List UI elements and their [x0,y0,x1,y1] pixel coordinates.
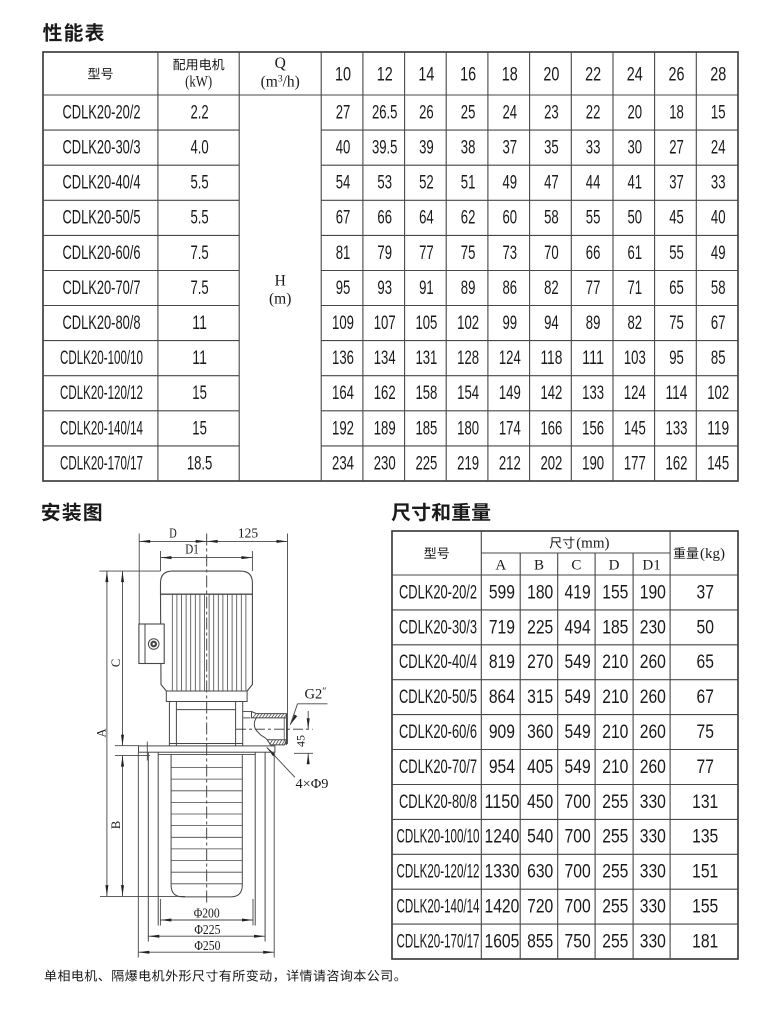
svg-text:24: 24 [711,138,726,159]
svg-text:5.5: 5.5 [191,173,209,194]
svg-text:82: 82 [628,313,643,334]
svg-text:85: 85 [711,348,726,369]
svg-text:109: 109 [332,313,354,334]
svg-text:77: 77 [697,757,714,778]
svg-text:50: 50 [628,208,643,229]
svg-text:40: 40 [336,138,351,159]
svg-text:51: 51 [461,173,476,194]
svg-text:234: 234 [332,453,354,474]
svg-text:909: 909 [489,722,515,743]
svg-text:91: 91 [419,278,434,299]
svg-text:7.5: 7.5 [191,243,209,264]
svg-text:158: 158 [415,383,437,404]
svg-text:260: 260 [640,687,666,708]
svg-text:89: 89 [586,313,601,334]
svg-text:D: D [609,558,620,574]
svg-text:B: B [109,821,123,829]
svg-text:45: 45 [293,735,307,747]
svg-text:1605: 1605 [485,931,520,952]
svg-text:75: 75 [697,722,714,743]
svg-text:164: 164 [332,383,354,404]
svg-text:A: A [95,728,109,737]
svg-text:18.5: 18.5 [187,453,213,474]
svg-text:133: 133 [666,418,688,439]
svg-text:Q: Q [275,55,286,72]
svg-text:28: 28 [710,64,726,85]
svg-text:180: 180 [527,582,553,603]
svg-text:5.5: 5.5 [191,208,209,229]
svg-text:181: 181 [692,931,718,952]
svg-text:CDLK20-100/10: CDLK20-100/10 [60,348,143,369]
svg-text:H: H [275,273,286,290]
svg-text:330: 330 [640,827,666,848]
svg-text:210: 210 [602,687,628,708]
svg-text:CDLK20-30/3: CDLK20-30/3 [63,138,141,159]
svg-text:37: 37 [669,173,684,194]
svg-text:2.2: 2.2 [191,102,209,123]
svg-text:D: D [169,527,177,542]
svg-text:22: 22 [586,102,601,123]
svg-text:119: 119 [707,418,729,439]
svg-text:330: 330 [640,931,666,952]
svg-text:95: 95 [336,278,351,299]
svg-text:549: 549 [565,652,591,673]
svg-text:185: 185 [602,617,628,638]
svg-text:35: 35 [544,138,559,159]
svg-text:210: 210 [602,757,628,778]
svg-text:105: 105 [415,313,437,334]
svg-text:20: 20 [543,64,559,85]
svg-text:151: 151 [692,862,718,883]
svg-text:CDLK20-40/4: CDLK20-40/4 [63,173,141,194]
svg-text:4.0: 4.0 [191,138,209,159]
svg-text:1330: 1330 [485,862,520,883]
svg-text:CDLK20-60/6: CDLK20-60/6 [63,243,141,264]
svg-text:62: 62 [461,208,476,229]
svg-text:89: 89 [461,278,476,299]
svg-text:180: 180 [457,418,479,439]
svg-text:190: 190 [582,453,604,474]
svg-text:CDLK20-20/2: CDLK20-20/2 [63,102,141,123]
svg-text:37: 37 [697,582,714,603]
svg-text:18: 18 [502,64,518,85]
svg-text:55: 55 [669,243,684,264]
svg-text:30: 30 [628,138,643,159]
svg-text:405: 405 [527,757,553,778]
svg-text:700: 700 [565,827,591,848]
svg-text:7.5: 7.5 [191,278,209,299]
svg-text:39: 39 [419,138,434,159]
svg-text:189: 189 [374,418,396,439]
svg-text:49: 49 [711,243,726,264]
svg-text:131: 131 [415,348,437,369]
svg-text:39.5: 39.5 [372,138,398,159]
svg-text:27: 27 [669,138,684,159]
svg-text:540: 540 [527,827,553,848]
svg-text:15: 15 [192,383,207,404]
svg-text:315: 315 [527,687,553,708]
svg-text:70: 70 [544,243,559,264]
svg-text:71: 71 [628,278,643,299]
svg-text:225: 225 [527,617,553,638]
svg-text:450: 450 [527,792,553,813]
svg-text:114: 114 [666,383,688,404]
svg-text:94: 94 [544,313,559,334]
svg-text:99: 99 [503,313,518,334]
svg-text:202: 202 [540,453,562,474]
svg-text:52: 52 [419,173,434,194]
svg-text:270: 270 [527,652,553,673]
svg-text:162: 162 [374,383,396,404]
svg-text:125: 125 [238,527,258,542]
svg-text:111: 111 [582,348,604,369]
svg-text:230: 230 [640,617,666,638]
svg-text:65: 65 [669,278,684,299]
svg-text:549: 549 [565,687,591,708]
svg-text:67: 67 [711,313,726,334]
svg-text:1420: 1420 [485,897,520,918]
svg-text:230: 230 [374,453,396,474]
svg-text:154: 154 [457,383,479,404]
svg-text:(kg): (kg) [700,546,725,562]
svg-text:102: 102 [707,383,729,404]
svg-text:630: 630 [527,862,553,883]
svg-text:54: 54 [336,173,351,194]
svg-text:CDLK20-120/12: CDLK20-120/12 [60,383,143,404]
svg-text:26.5: 26.5 [372,102,398,123]
svg-text:(kW): (kW) [185,74,212,91]
svg-text:330: 330 [640,792,666,813]
svg-text:700: 700 [565,862,591,883]
svg-text:Φ200: Φ200 [194,907,220,922]
svg-text:185: 185 [415,418,437,439]
svg-text:210: 210 [602,722,628,743]
svg-text:79: 79 [377,243,392,264]
svg-text:156: 156 [582,418,604,439]
svg-text:Φ225: Φ225 [194,923,220,938]
svg-text:24: 24 [503,102,518,123]
svg-text:67: 67 [697,687,714,708]
svg-text:166: 166 [540,418,562,439]
svg-text:599: 599 [489,582,515,603]
svg-text:954: 954 [489,757,515,778]
svg-text:B: B [534,558,544,574]
svg-text:494: 494 [565,617,591,638]
svg-text:38: 38 [461,138,476,159]
svg-text:102: 102 [457,313,479,334]
svg-text:330: 330 [640,862,666,883]
svg-text:15: 15 [192,418,207,439]
svg-text:CDLK20-170/17: CDLK20-170/17 [60,453,143,474]
svg-text:75: 75 [669,313,684,334]
svg-text:103: 103 [624,348,646,369]
svg-text:155: 155 [602,582,628,603]
svg-text:330: 330 [640,897,666,918]
svg-text:81: 81 [336,243,351,264]
svg-text:CDLK20-20/2: CDLK20-20/2 [399,582,477,603]
svg-text:27: 27 [336,102,351,123]
svg-text:11: 11 [192,348,207,369]
svg-text:260: 260 [640,722,666,743]
svg-text:(m): (m) [269,291,291,308]
svg-text:82: 82 [544,278,559,299]
svg-text:419: 419 [565,582,591,603]
svg-text:67: 67 [336,208,351,229]
svg-text:26: 26 [669,64,685,85]
svg-text:124: 124 [624,383,646,404]
svg-text:CDLK20-140/14: CDLK20-140/14 [397,897,480,918]
svg-text:255: 255 [602,931,628,952]
svg-text:177: 177 [624,453,646,474]
svg-text:219: 219 [457,453,479,474]
svg-text:66: 66 [586,243,601,264]
svg-text:720: 720 [527,897,553,918]
svg-text:107: 107 [374,313,396,334]
svg-text:41: 41 [628,173,643,194]
svg-text:12: 12 [377,64,393,85]
svg-text:44: 44 [586,173,601,194]
svg-text:CDLK20-30/3: CDLK20-30/3 [399,617,477,638]
svg-text:15: 15 [711,102,726,123]
svg-text:260: 260 [640,652,666,673]
svg-text:549: 549 [565,722,591,743]
svg-text:819: 819 [489,652,515,673]
svg-text:33: 33 [586,138,601,159]
svg-text:58: 58 [711,278,726,299]
svg-text:174: 174 [499,418,521,439]
svg-text:18: 18 [669,102,684,123]
svg-text:CDLK20-40/4: CDLK20-40/4 [399,652,477,673]
svg-text:66: 66 [377,208,392,229]
svg-text:145: 145 [707,453,729,474]
svg-text:124: 124 [499,348,521,369]
svg-text:11: 11 [192,313,207,334]
svg-text:(mm): (mm) [576,536,609,552]
svg-text:131: 131 [692,792,718,813]
svg-text:10: 10 [335,64,351,85]
svg-text:C: C [571,558,581,574]
svg-text:50: 50 [697,617,714,638]
svg-text:855: 855 [527,931,553,952]
svg-text:149: 149 [499,383,521,404]
svg-text:225: 225 [415,453,437,474]
svg-text:D1: D1 [185,543,199,558]
svg-text:CDLK20-140/14: CDLK20-140/14 [60,418,143,439]
svg-text:CDLK20-80/8: CDLK20-80/8 [63,313,141,334]
svg-text:136: 136 [332,348,354,369]
svg-text:CDLK20-70/7: CDLK20-70/7 [399,757,477,778]
svg-text:CDLK20-170/17: CDLK20-170/17 [397,931,480,952]
svg-text:G2″: G2″ [305,687,327,703]
svg-text:A: A [495,558,506,574]
svg-text:45: 45 [669,208,684,229]
svg-text:CDLK20-100/10: CDLK20-100/10 [397,827,480,848]
svg-text:700: 700 [565,792,591,813]
svg-text:26: 26 [419,102,434,123]
svg-text:CDLK20-60/6: CDLK20-60/6 [399,722,477,743]
svg-text:128: 128 [457,348,479,369]
svg-text:133: 133 [582,383,604,404]
svg-text:360: 360 [527,722,553,743]
svg-text:75: 75 [461,243,476,264]
svg-text:210: 210 [602,652,628,673]
svg-text:192: 192 [332,418,354,439]
svg-text:255: 255 [602,862,628,883]
svg-text:40: 40 [711,208,726,229]
svg-text:255: 255 [602,792,628,813]
svg-text:CDLK20-50/5: CDLK20-50/5 [63,208,141,229]
svg-text:55: 55 [586,208,601,229]
svg-text:33: 33 [711,173,726,194]
svg-text:CDLK20-70/7: CDLK20-70/7 [63,278,141,299]
svg-text:190: 190 [640,582,666,603]
svg-text:61: 61 [628,243,643,264]
svg-text:255: 255 [602,897,628,918]
svg-text:22: 22 [585,64,601,85]
svg-text:135: 135 [692,827,718,848]
svg-text:CDLK20-120/12: CDLK20-120/12 [397,862,480,883]
svg-text:58: 58 [544,208,559,229]
svg-text:142: 142 [540,383,562,404]
svg-text:95: 95 [669,348,684,369]
svg-text:14: 14 [418,64,434,85]
svg-text:D1: D1 [642,558,660,574]
svg-text:864: 864 [489,687,515,708]
svg-text:49: 49 [503,173,518,194]
svg-text:145: 145 [624,418,646,439]
svg-text:53: 53 [377,173,392,194]
svg-text:47: 47 [544,173,559,194]
svg-text:60: 60 [503,208,518,229]
svg-text:4×Φ9: 4×Φ9 [296,777,329,792]
svg-text:77: 77 [419,243,434,264]
svg-text:C: C [109,659,123,667]
svg-text:700: 700 [565,897,591,918]
svg-text:260: 260 [640,757,666,778]
svg-text:118: 118 [540,348,562,369]
svg-text:37: 37 [503,138,518,159]
svg-text:64: 64 [419,208,434,229]
svg-text:750: 750 [565,931,591,952]
svg-text:549: 549 [565,757,591,778]
svg-text:1240: 1240 [485,827,520,848]
svg-text:23: 23 [544,102,559,123]
svg-text:719: 719 [489,617,515,638]
svg-text:212: 212 [499,453,521,474]
svg-text:1150: 1150 [485,792,520,813]
svg-text:CDLK20-80/8: CDLK20-80/8 [399,792,477,813]
svg-text:134: 134 [374,348,396,369]
svg-text:65: 65 [697,652,714,673]
svg-text:86: 86 [503,278,518,299]
svg-text:73: 73 [503,243,518,264]
svg-text:(m3/h): (m3/h) [261,74,300,91]
svg-text:CDLK20-50/5: CDLK20-50/5 [399,687,477,708]
svg-text:93: 93 [377,278,392,299]
svg-text:16: 16 [460,64,476,85]
svg-text:155: 155 [692,897,718,918]
svg-text:255: 255 [602,827,628,848]
svg-text:162: 162 [666,453,688,474]
svg-text:77: 77 [586,278,601,299]
svg-text:24: 24 [627,64,643,85]
svg-text:20: 20 [628,102,643,123]
svg-text:Φ250: Φ250 [194,939,220,954]
svg-text:25: 25 [461,102,476,123]
